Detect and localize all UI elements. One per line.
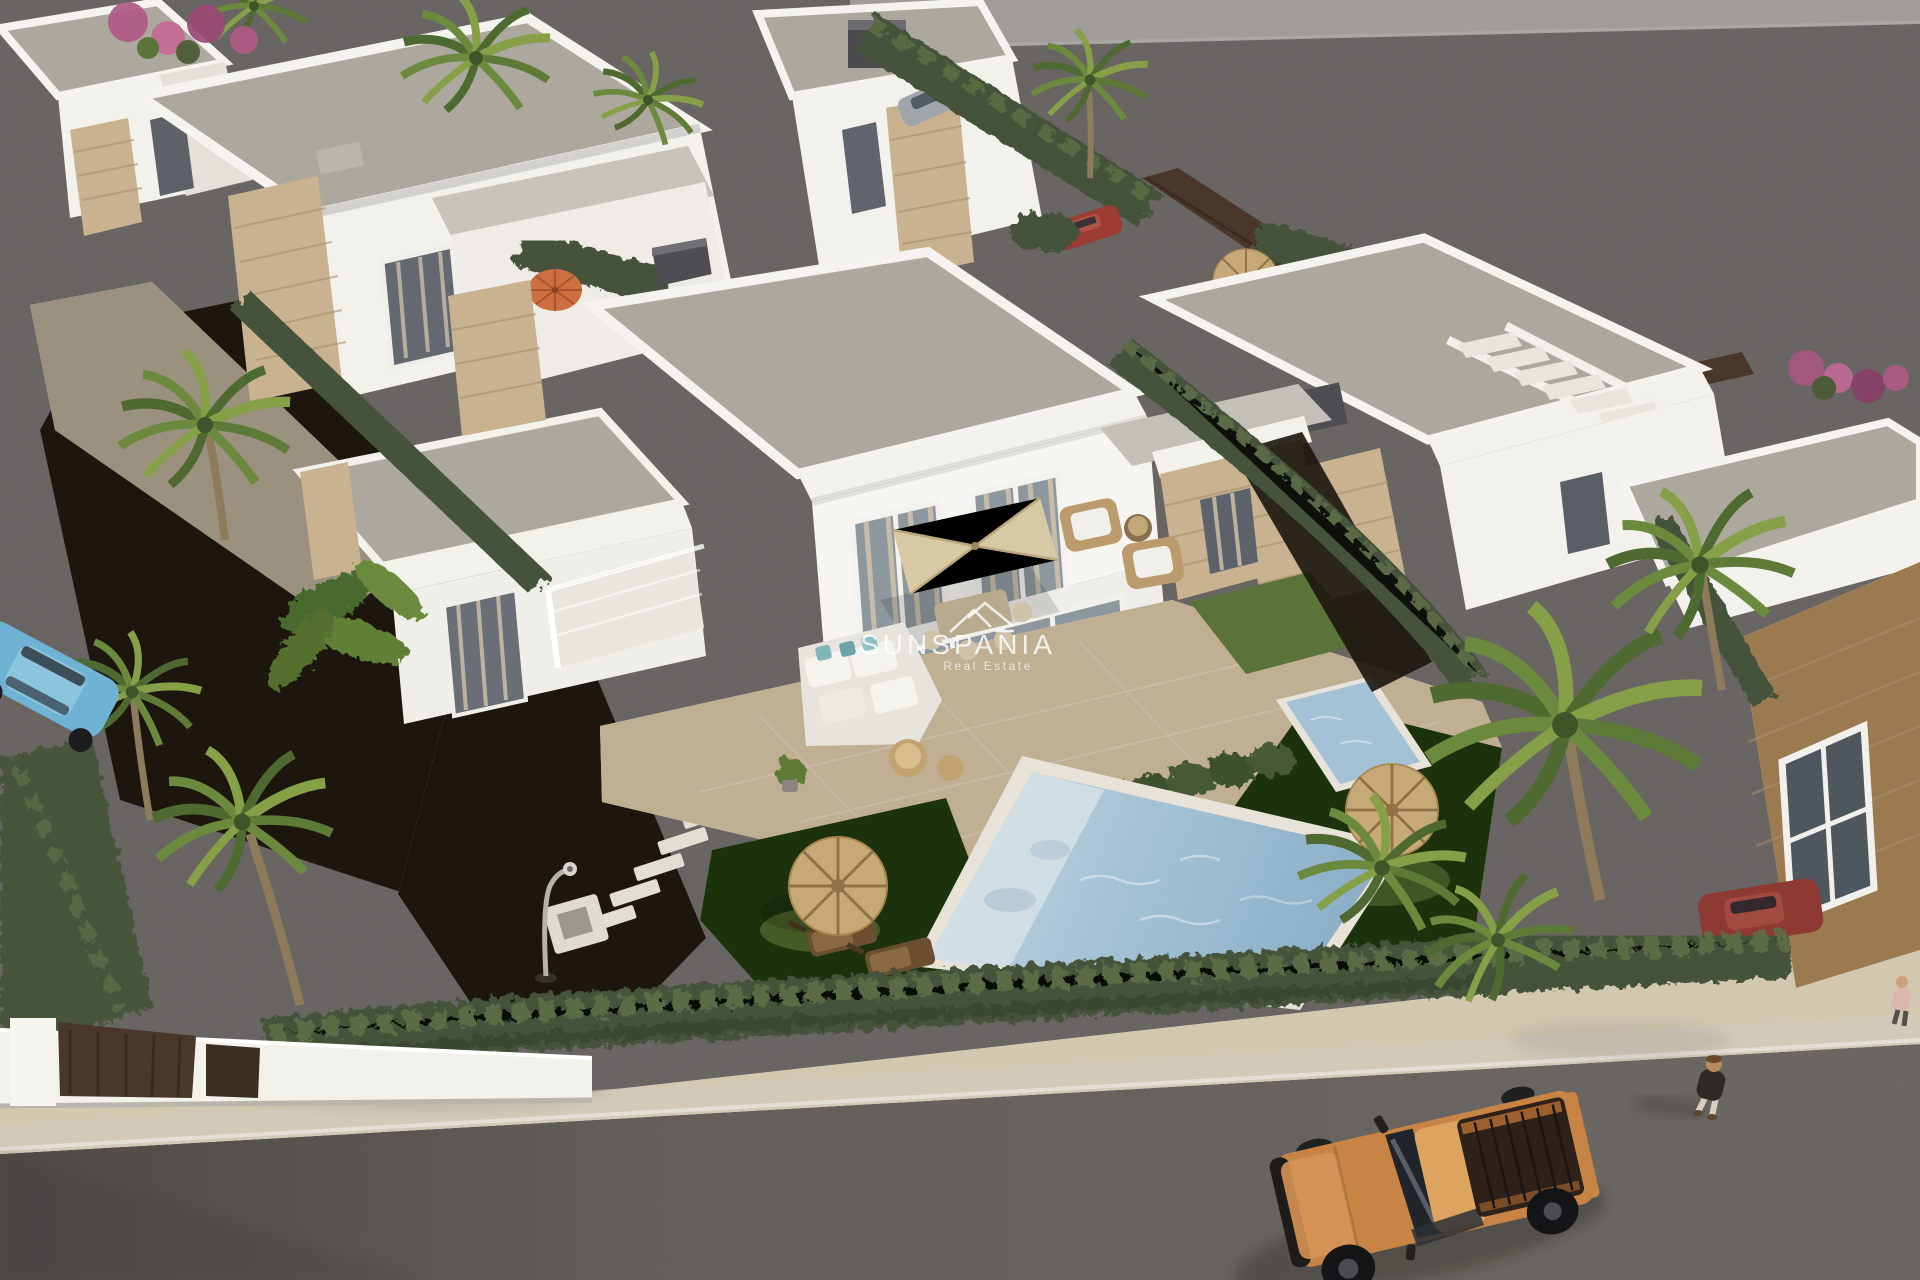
hedge-bush (1010, 212, 1078, 252)
hair (1706, 1055, 1722, 1063)
window (1200, 488, 1258, 574)
wall-pillar (10, 1018, 56, 1106)
tree-shadow (1510, 1020, 1730, 1060)
orange-umbrella (528, 269, 582, 311)
rattan-table (937, 755, 963, 781)
straw-parasol (789, 837, 887, 935)
stone-accent (448, 280, 546, 436)
window (1560, 472, 1610, 554)
watermark-tagline: Real Estate (943, 659, 1033, 673)
aerial-render: SUNSPANIA Real Estate (0, 0, 1920, 1280)
watermark-brand: SUNSPANIA (860, 629, 1056, 660)
render-scene: SUNSPANIA Real Estate (0, 0, 1920, 1280)
pedestrian-gate (206, 1044, 260, 1098)
straw-parasol (1346, 764, 1438, 856)
mirror (1406, 1244, 1416, 1261)
